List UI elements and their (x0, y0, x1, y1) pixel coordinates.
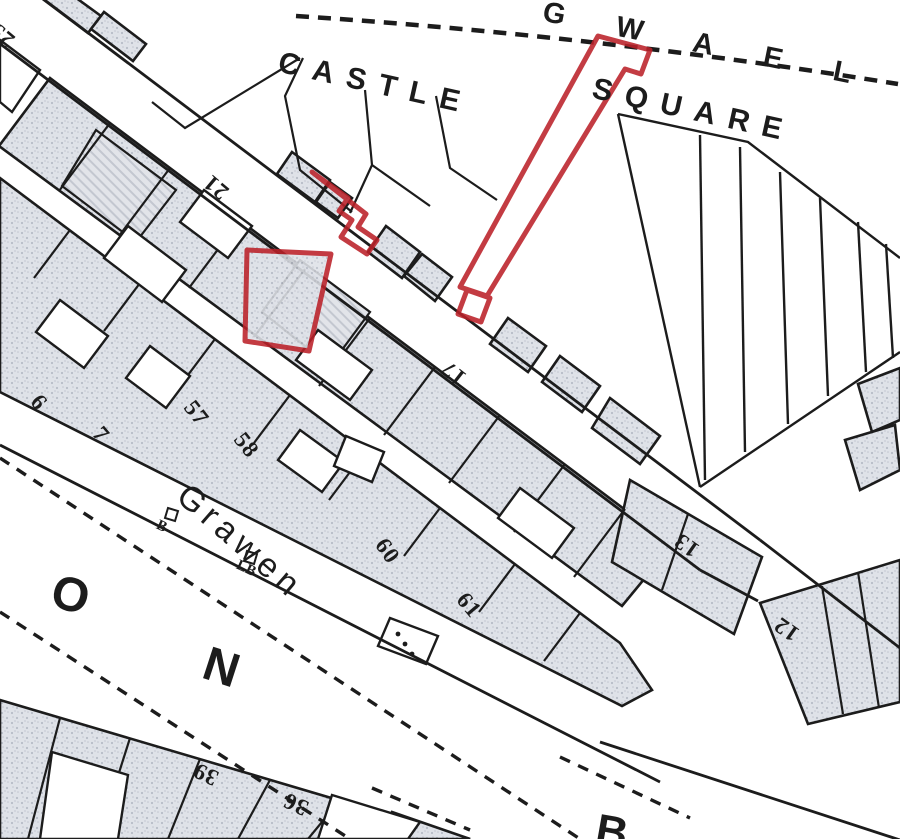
street-letter-partial: B (592, 808, 631, 839)
strip-plot-fan (618, 114, 900, 487)
highlighted-plot-stub[interactable] (458, 290, 490, 322)
historic-map: G W A E L O CASTLE SQUARE Grawen O N B B… (0, 0, 900, 839)
highlighted-plot-long[interactable] (460, 36, 650, 296)
